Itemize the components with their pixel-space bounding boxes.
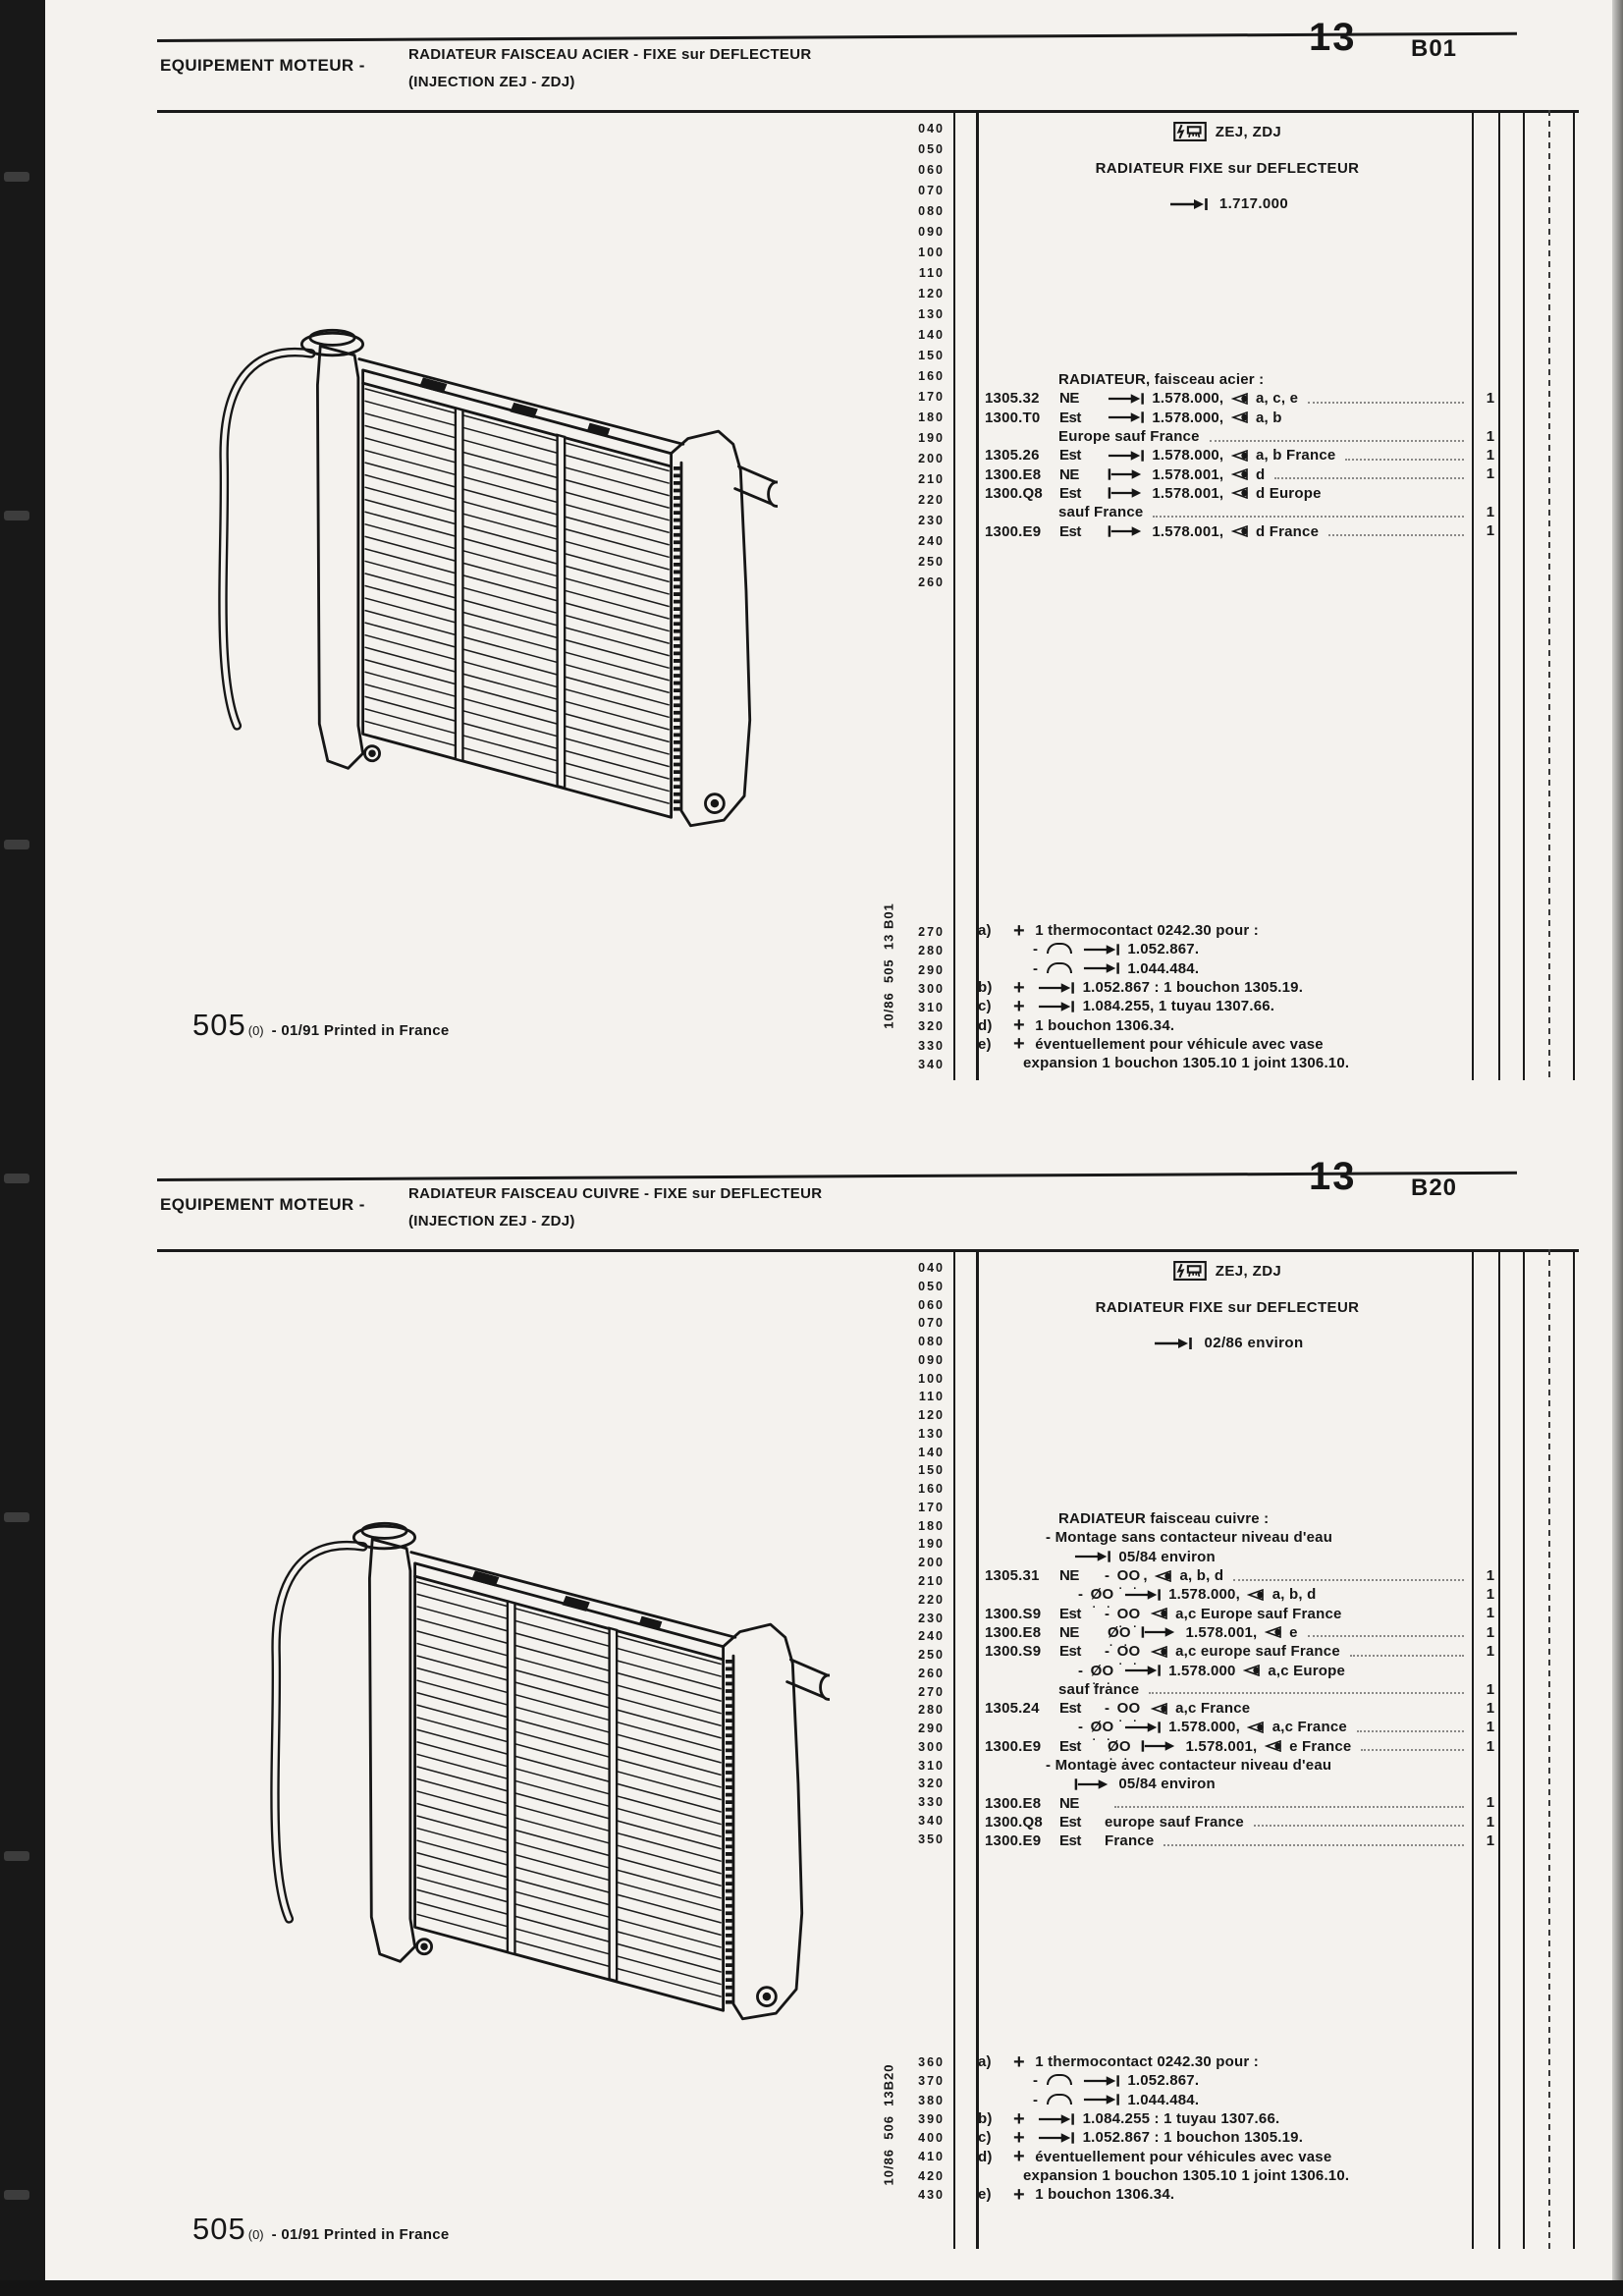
margin-number: 040 [901, 1261, 945, 1280]
margin-number: 350 [901, 1832, 945, 1851]
row-description: Europe sauf France [1058, 428, 1200, 445]
row-description: RADIATEUR, faisceau acier : [1058, 371, 1264, 388]
note-row: - 1.044.484. [978, 959, 1470, 978]
note-reference-eye-icon [1265, 1626, 1282, 1638]
footer-print-info: - 01/91 Printed in France [272, 2226, 450, 2243]
margin-number: 050 [901, 142, 945, 163]
quantity: 1 [1480, 522, 1501, 539]
gearbox-circles-slashed-icon: ØO [1091, 1719, 1114, 1735]
margin-number: 180 [901, 410, 945, 431]
panel-models: ZEJ, ZDJ [1216, 124, 1281, 140]
plate-code: B20 [1411, 1175, 1457, 1202]
margin-number: 220 [901, 1593, 945, 1612]
quantity: 1 [1480, 1700, 1501, 1717]
arrow-until-icon [1083, 943, 1120, 957]
quantity: 1 [1480, 1738, 1501, 1755]
parts-row: RADIATEUR faisceau cuivre : [985, 1509, 1470, 1528]
arrow-until-icon [1124, 1588, 1162, 1602]
page-footer: 505 (0) - 01/91 Printed in France [192, 2212, 450, 2247]
margin-number: 150 [901, 349, 945, 369]
margin-number: 300 [901, 1740, 945, 1759]
note-row: expansion 1 bouchon 1305.10 1 joint 1306… [978, 2166, 1470, 2185]
arrow-from-icon [1141, 1739, 1178, 1753]
margin-number: 140 [901, 1446, 945, 1464]
note-row: expansion 1 bouchon 1305.10 1 joint 1306… [978, 1054, 1470, 1072]
margin-number: 430 [901, 2188, 945, 2207]
print-stamp: 10/86 505 13 B01 [882, 863, 896, 1069]
row-description: - OO, a, b, d [1105, 1567, 1223, 1584]
note-row: c)+ 1.052.867 : 1 bouchon 1305.19. [978, 2128, 1470, 2147]
header-rule-bottom [157, 1249, 1579, 1252]
row-description: - ØO 1.578.000 a,c Europe [1078, 1663, 1345, 1679]
margin-number: 210 [901, 472, 945, 493]
injection-symbol-icon [1173, 1261, 1207, 1281]
arrow-until-icon [1074, 1550, 1111, 1563]
parts-row: 1300.Q8Esteurope sauf France1 [985, 1813, 1470, 1831]
margin-number: 150 [901, 1463, 945, 1482]
quantity: 1 [1480, 465, 1501, 482]
margin-number: 410 [901, 2150, 945, 2168]
note-reference-eye-icon [1231, 450, 1249, 462]
row-description: 05/84 environ [1071, 1549, 1216, 1565]
radiator-illustration [130, 285, 778, 846]
margin-number: 240 [901, 1629, 945, 1648]
section-eyebrow: EQUIPEMENT MOTEUR - [160, 1195, 365, 1215]
section-title-line2: (INJECTION ZEJ - ZDJ) [408, 74, 575, 90]
note-reference-eye-icon [1265, 1740, 1282, 1752]
margin-number: 200 [901, 1556, 945, 1574]
margin-number: 420 [901, 2169, 945, 2188]
margin-number: 330 [901, 1039, 945, 1058]
panel-title: RADIATEUR FIXE sur DEFLECTEUR [985, 1299, 1470, 1316]
parts-row: Europe sauf France1 [985, 427, 1470, 446]
row-description: RADIATEUR faisceau cuivre : [1058, 1510, 1269, 1527]
margin-number: 210 [901, 1574, 945, 1593]
margin-number: 380 [901, 2094, 945, 2112]
parts-row: RADIATEUR, faisceau acier : [985, 370, 1470, 389]
margin-number: 260 [901, 575, 945, 596]
footer-model: 505 [192, 2212, 246, 2247]
margin-number: 110 [901, 1390, 945, 1408]
margin-number: 220 [901, 493, 945, 514]
margin-number: 100 [901, 1372, 945, 1391]
gearbox-circles-slashed-icon: ØO [1108, 1738, 1131, 1755]
gearbox-circles-slashed-icon: ØO [1091, 1663, 1114, 1679]
notes-list: a)+ 1 thermocontact 0242.30 pour :- 1.05… [978, 2052, 1470, 2204]
section-b01: EQUIPEMENT MOTEUR - RADIATEUR FAISCEAU A… [0, 0, 1623, 1139]
row-description: ØO 1.578.001, e France [1105, 1738, 1351, 1755]
margin-number: 160 [901, 369, 945, 390]
note-row: e)+ éventuellement pour véhicule avec va… [978, 1035, 1470, 1054]
note-reference-eye-icon [1151, 1608, 1168, 1619]
section-title-line1: RADIATEUR FAISCEAU CUIVRE - FIXE sur DEF… [408, 1185, 822, 1202]
note-row: - 1.052.867. [978, 2071, 1470, 2090]
panel-range-text: 1.717.000 [1219, 195, 1288, 212]
margin-number: 310 [901, 1759, 945, 1777]
note-row: e)+ 1 bouchon 1306.34. [978, 2185, 1470, 2204]
notes-list: a)+ 1 thermocontact 0242.30 pour :- 1.05… [978, 921, 1470, 1072]
margin-number: 320 [901, 1019, 945, 1038]
margin-number: 120 [901, 1408, 945, 1427]
margin-note-numbers: 360370380390400410420430 [901, 2055, 945, 2207]
parts-row: 05/84 environ [985, 1775, 1470, 1793]
arrow-until-icon [1038, 981, 1075, 995]
arc-icon [1047, 943, 1072, 954]
arrow-from-icon [1108, 467, 1145, 481]
row-description: 1.578.001, d Europe [1105, 485, 1322, 502]
parts-row: 1300.E8NE 1.578.001, d1 [985, 465, 1470, 483]
margin-number: 330 [901, 1795, 945, 1814]
gearbox-circles-icon: OO [1117, 1643, 1141, 1660]
panel-range: 02/86 environ [985, 1335, 1470, 1351]
plus-icon: + [1013, 1001, 1025, 1012]
note-reference-eye-icon [1155, 1570, 1172, 1582]
row-description: 05/84 environ [1071, 1776, 1216, 1792]
margin-note-numbers: 270280290300310320330340 [901, 925, 945, 1076]
section-title-line2: (INJECTION ZEJ - ZDJ) [408, 1213, 575, 1230]
note-reference-eye-icon [1231, 487, 1249, 499]
margin-number: 230 [901, 1612, 945, 1630]
margin-number: 110 [901, 266, 945, 287]
margin-number: 200 [901, 452, 945, 472]
margin-number: 390 [901, 2112, 945, 2131]
note-row: - 1.044.484. [978, 2091, 1470, 2109]
margin-number: 090 [901, 225, 945, 246]
footer-print-info: - 01/91 Printed in France [272, 1022, 450, 1039]
plus-icon: + [1013, 2151, 1025, 2162]
margin-number: 070 [901, 184, 945, 204]
plate-number: 13 [1309, 1155, 1357, 1199]
margin-number: 100 [901, 246, 945, 266]
arrow-until-icon [1124, 1664, 1162, 1677]
section-eyebrow: EQUIPEMENT MOTEUR - [160, 56, 365, 76]
panel-models-line: ZEJ, ZDJ [985, 1261, 1470, 1281]
parts-row: sauf france1 [985, 1680, 1470, 1699]
page-footer: 505 (0) - 01/91 Printed in France [192, 1008, 450, 1043]
row-description: France [1105, 1832, 1154, 1849]
arrow-until-icon [1108, 449, 1145, 463]
gearbox-circles-icon: OO [1117, 1567, 1141, 1584]
quantity: 1 [1480, 1567, 1501, 1584]
parts-row: - Montage sans contacteur niveau d'eau [985, 1528, 1470, 1547]
quantity: 1 [1480, 1586, 1501, 1603]
parts-row: 05/84 environ [985, 1548, 1470, 1566]
panel-models-line: ZEJ, ZDJ [985, 122, 1470, 141]
margin-number: 120 [901, 287, 945, 307]
note-row: b)+ 1.084.255 : 1 tuyau 1307.66. [978, 2109, 1470, 2128]
margin-number: 140 [901, 328, 945, 349]
quantity: 1 [1480, 1624, 1501, 1641]
note-reference-eye-icon [1231, 411, 1249, 423]
parts-row: 1300.S9Est- OO a,c Europe sauf France1 [985, 1604, 1470, 1622]
panel-range: 1.717.000 [985, 195, 1470, 212]
arrow-until-icon [1038, 2131, 1075, 2145]
note-row: b)+ 1.052.867 : 1 bouchon 1305.19. [978, 978, 1470, 997]
parts-row: 1300.Q8Est 1.578.001, d Europe [985, 484, 1470, 503]
margin-number: 290 [901, 963, 945, 982]
note-row: c)+ 1.084.255, 1 tuyau 1307.66. [978, 997, 1470, 1015]
row-description: - OO a,c Europe sauf France [1105, 1606, 1342, 1622]
arrow-from-icon [1074, 1777, 1111, 1791]
quantity: 1 [1480, 1794, 1501, 1811]
margin-number: 300 [901, 982, 945, 1001]
parts-list: RADIATEUR faisceau cuivre :- Montage san… [985, 1509, 1470, 1850]
note-row: d)+ 1 bouchon 1306.34. [978, 1015, 1470, 1034]
row-description: 1.578.001, d France [1105, 523, 1319, 540]
margin-number: 340 [901, 1814, 945, 1832]
footer-model: 505 [192, 1008, 246, 1043]
note-reference-eye-icon [1247, 1589, 1265, 1601]
note-reference-eye-icon [1231, 393, 1249, 405]
arrow-until-icon [1124, 1721, 1162, 1734]
quantity: 1 [1480, 1643, 1501, 1660]
margin-number: 280 [901, 1703, 945, 1722]
plus-icon: + [1013, 1019, 1025, 1031]
row-description: 1.578.001, d [1105, 466, 1265, 483]
margin-number: 250 [901, 555, 945, 575]
plus-icon: + [1013, 2113, 1025, 2125]
arc-icon [1047, 962, 1072, 973]
footer-model-sub: (0) [248, 1023, 264, 1038]
row-description: - OO a,c France [1105, 1700, 1250, 1717]
row-description: europe sauf France [1105, 1814, 1244, 1831]
parts-row: 1305.24Est- OO a,c France1 [985, 1699, 1470, 1718]
margin-number: 060 [901, 1298, 945, 1317]
margin-number: 080 [901, 1335, 945, 1353]
note-reference-eye-icon [1247, 1722, 1265, 1733]
parts-row: 1305.32NE 1.578.000, a, c, e1 [985, 389, 1470, 408]
margin-number: 040 [901, 122, 945, 142]
radiator-illustration [182, 1478, 830, 2039]
parts-row: 1300.T0Est 1.578.000, a, b [985, 409, 1470, 427]
plus-icon: + [1013, 2056, 1025, 2068]
parts-row: - ØO 1.578.000, a,c France1 [985, 1718, 1470, 1736]
parts-row: 1300.E8NEØO 1.578.001, e1 [985, 1623, 1470, 1642]
plus-icon: + [1013, 2132, 1025, 2144]
margin-number: 260 [901, 1667, 945, 1685]
margin-number: 090 [901, 1353, 945, 1372]
margin-number: 160 [901, 1482, 945, 1501]
parts-list: RADIATEUR, faisceau acier :1305.32NE 1.5… [985, 370, 1470, 541]
arc-icon [1047, 2094, 1072, 2105]
quantity: 1 [1480, 504, 1501, 520]
note-row: a)+ 1 thermocontact 0242.30 pour : [978, 921, 1470, 940]
panel-range-text: 02/86 environ [1204, 1335, 1303, 1351]
arrow-until-icon [1108, 392, 1145, 406]
plus-icon: + [1013, 982, 1025, 994]
margin-number: 190 [901, 1537, 945, 1556]
margin-number: 320 [901, 1777, 945, 1795]
margin-number: 170 [901, 390, 945, 410]
margin-number: 240 [901, 534, 945, 555]
margin-number: 340 [901, 1058, 945, 1076]
row-description: - Montage avec contacteur niveau d'eau [1046, 1757, 1331, 1774]
quantity: 1 [1480, 428, 1501, 445]
plate-number: 13 [1309, 16, 1357, 60]
note-reference-eye-icon [1243, 1665, 1261, 1676]
arrow-until-icon [1083, 2093, 1120, 2106]
row-description: sauf France [1058, 504, 1143, 520]
parts-row: - ØO 1.578.000, a, b, d1 [985, 1585, 1470, 1604]
margin-number: 230 [901, 514, 945, 534]
margin-number: 270 [901, 1685, 945, 1704]
note-reference-eye-icon [1231, 468, 1249, 480]
arrow-from-icon [1108, 486, 1145, 500]
panel-title: RADIATEUR FIXE sur DEFLECTEUR [985, 160, 1470, 177]
margin-number: 070 [901, 1316, 945, 1335]
margin-number: 270 [901, 925, 945, 944]
arc-icon [1047, 2074, 1072, 2085]
plus-icon: + [1013, 1038, 1025, 1050]
parts-row: - ØO 1.578.000 a,c Europe [985, 1661, 1470, 1679]
panel-models: ZEJ, ZDJ [1216, 1263, 1281, 1280]
print-stamp: 10/86 506 13B20 [882, 2022, 896, 2228]
row-description: 1.578.000, a, c, e [1105, 390, 1298, 407]
plus-icon: + [1013, 2189, 1025, 2201]
parts-row: 1300.E9EstFrance1 [985, 1831, 1470, 1850]
note-row: - 1.052.867. [978, 940, 1470, 958]
margin-number: 080 [901, 204, 945, 225]
note-reference-eye-icon [1151, 1646, 1168, 1658]
arrow-until-icon [1083, 961, 1120, 975]
margin-number: 170 [901, 1501, 945, 1519]
row-description: - OO a,c europe sauf France [1105, 1643, 1340, 1660]
parts-row: 1300.S9Est- OO a,c europe sauf France1 [985, 1642, 1470, 1661]
note-row: d)+ éventuellement pour véhicules avec v… [978, 2147, 1470, 2165]
gearbox-circles-icon: OO [1117, 1606, 1141, 1622]
plus-icon: + [1013, 925, 1025, 937]
arrow-until-icon [1038, 2112, 1075, 2126]
row-description: sauf france [1058, 1681, 1139, 1698]
parts-row: 1300.E9Est 1.578.001, d France1 [985, 521, 1470, 540]
quantity: 1 [1480, 1832, 1501, 1849]
row-description: 1.578.000, a, b France [1105, 447, 1335, 464]
margin-number: 130 [901, 1427, 945, 1446]
arrow-until-icon [1108, 410, 1145, 424]
margin-number: 250 [901, 1648, 945, 1667]
margin-number: 130 [901, 307, 945, 328]
parts-row: sauf France1 [985, 503, 1470, 521]
row-description: 1.578.000, a, b [1105, 410, 1282, 426]
quantity: 1 [1480, 390, 1501, 407]
quantity: 1 [1480, 1605, 1501, 1621]
row-description: - ØO 1.578.000, a,c France [1078, 1719, 1347, 1735]
quantity: 1 [1480, 1681, 1501, 1698]
arrow-from-icon [1108, 524, 1145, 538]
plate-code: B01 [1411, 35, 1457, 63]
parts-row: 1300.E9EstØO 1.578.001, e France1 [985, 1737, 1470, 1756]
parts-row: 1300.E8NE1 [985, 1793, 1470, 1812]
quantity: 1 [1480, 1814, 1501, 1831]
quantity: 1 [1480, 1719, 1501, 1735]
margin-number: 290 [901, 1722, 945, 1740]
note-reference-eye-icon [1231, 525, 1249, 537]
parts-row: 1305.31NE- OO, a, b, d1 [985, 1566, 1470, 1585]
margin-number: 060 [901, 163, 945, 184]
injection-symbol-icon [1173, 122, 1207, 141]
row-description: - Montage sans contacteur niveau d'eau [1046, 1529, 1332, 1546]
note-row: a)+ 1 thermocontact 0242.30 pour : [978, 2052, 1470, 2071]
margin-number: 310 [901, 1001, 945, 1019]
section-b20: EQUIPEMENT MOTEUR - RADIATEUR FAISCEAU C… [0, 1139, 1623, 2296]
margin-number: 360 [901, 2055, 945, 2074]
margin-reference-numbers: 0400500600700800901001101201301401501601… [901, 1261, 945, 1851]
arrow-until-icon [1154, 1337, 1193, 1350]
margin-number: 190 [901, 431, 945, 452]
margin-reference-numbers: 0400500600700800901001101201301401501601… [901, 122, 945, 596]
margin-number: 180 [901, 1519, 945, 1538]
gearbox-circles-slashed-icon: ØO [1108, 1624, 1131, 1641]
margin-number: 400 [901, 2131, 945, 2150]
margin-number: 370 [901, 2074, 945, 2093]
row-description: - ØO 1.578.000, a, b, d [1078, 1586, 1316, 1603]
catalog-page: EQUIPEMENT MOTEUR - RADIATEUR FAISCEAU A… [0, 0, 1623, 2296]
arrow-until-icon [1038, 1000, 1075, 1013]
arrow-until-icon [1169, 197, 1209, 211]
section-title-line1: RADIATEUR FAISCEAU ACIER - FIXE sur DEFL… [408, 46, 812, 63]
margin-number: 280 [901, 944, 945, 962]
note-reference-eye-icon [1151, 1703, 1168, 1715]
gearbox-circles-icon: OO [1117, 1700, 1141, 1717]
margin-number: 050 [901, 1280, 945, 1298]
gearbox-circles-slashed-icon: ØO [1091, 1586, 1114, 1603]
row-description: ØO 1.578.001, e [1105, 1624, 1298, 1641]
arrow-until-icon [1083, 2074, 1120, 2088]
parts-row: - Montage avec contacteur niveau d'eau [985, 1756, 1470, 1775]
quantity: 1 [1480, 447, 1501, 464]
parts-row: 1305.26Est 1.578.000, a, b France1 [985, 446, 1470, 465]
header-rule-bottom [157, 110, 1579, 113]
arrow-from-icon [1141, 1625, 1178, 1639]
footer-model-sub: (0) [248, 2227, 264, 2242]
